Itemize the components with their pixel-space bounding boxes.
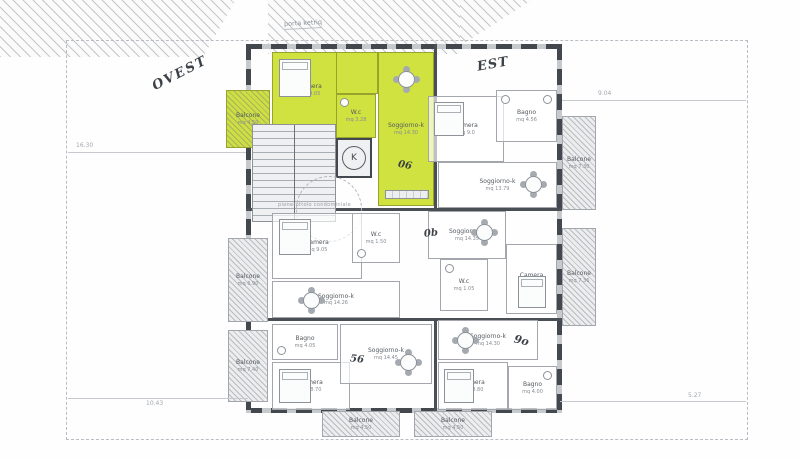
room-midright-soggiorno: Soggiorno-k mq 14.35	[428, 211, 506, 259]
room-midleft-camera: Camera mq 9.05	[272, 213, 362, 279]
corridor-label: pianerottolo condominiale	[278, 202, 351, 208]
table-icon	[398, 71, 415, 88]
room-bottomright-camera: Camera mq 8.80	[438, 362, 508, 410]
room-highlighted-hall	[336, 52, 378, 94]
dim-bottom-right: 5.27	[688, 392, 701, 399]
dim-line-left	[68, 152, 246, 153]
room-bottomleft-balcone-bottom: Balcone mq 4.50	[322, 411, 400, 437]
sink-icon	[543, 95, 552, 104]
room-label: Balcone	[567, 156, 591, 164]
room-label: Balcone	[236, 273, 260, 281]
dim-bottom-left: 10.43	[146, 400, 163, 407]
room-midright-balcone: Balcone mq 7.36	[562, 228, 596, 326]
handwritten-annotation: 56	[349, 353, 364, 365]
room-label: Bagno	[523, 381, 542, 389]
table-icon	[476, 224, 493, 241]
bed-icon	[518, 276, 546, 308]
room-highlighted-wc: W.c mq 3.28	[336, 94, 376, 138]
table-icon	[457, 332, 474, 349]
room-topright-bagno: Bagno mq 4.56	[496, 90, 557, 142]
room-label: Bagno	[295, 335, 314, 343]
bed-icon	[279, 59, 311, 97]
room-area: mq 7.36	[569, 278, 590, 284]
room-midright-camera: Camera mq 9.10	[506, 244, 557, 314]
table-icon	[525, 176, 542, 193]
bed-icon	[279, 219, 311, 255]
room-area: mq 4.56	[516, 117, 537, 123]
room-area: mq 7.40	[238, 367, 259, 373]
elevator-letter: K	[351, 153, 357, 163]
room-area: mq 14.30	[394, 130, 418, 136]
room-area: mq 14.30	[476, 341, 500, 347]
room-label: Balcone	[236, 359, 260, 367]
room-label: Soggiorno-k	[470, 333, 506, 341]
toilet-icon	[445, 264, 454, 273]
room-area: mq 13.79	[486, 186, 510, 192]
handwritten-annotation: 06	[397, 159, 413, 172]
room-label: Balcone	[349, 417, 373, 425]
room-highlighted-soggiorno: Soggiorno-k mq 14.30	[378, 52, 434, 206]
room-label: Bagno	[517, 109, 536, 117]
room-area: mq 14.26	[324, 300, 348, 306]
room-label: Soggiorno-k	[388, 122, 424, 130]
site-note-label: porta ketriq	[284, 18, 323, 30]
toilet-icon	[543, 371, 552, 380]
toilet-icon	[277, 346, 286, 355]
dim-top-right: 9.04	[598, 90, 611, 97]
elevator: K	[336, 138, 372, 178]
table-icon	[303, 292, 320, 309]
room-midright-wc: W.c mq 1.05	[440, 259, 488, 311]
room-area: mq 14.45	[374, 355, 398, 361]
room-area: mq 1.05	[454, 286, 475, 292]
table-icon	[400, 354, 417, 371]
handwritten-annotation: 0b	[423, 227, 438, 239]
room-label: Soggiorno-k	[479, 178, 515, 186]
bed-icon	[434, 102, 464, 136]
room-area: mq 4.50	[443, 425, 464, 431]
dim-line-top-right	[562, 100, 746, 101]
room-area: mq 14.35	[455, 236, 479, 242]
building-wall-top	[246, 44, 562, 49]
room-bottomright-balcone-bottom: Balcone mq 4.50	[414, 411, 492, 437]
room-bottomleft-camera: Camera mq 8.70	[272, 362, 350, 410]
kitchen-icon	[385, 190, 429, 199]
room-topright-balcone: Balcone mq 7.30	[562, 116, 596, 210]
dim-left: 16.30	[76, 142, 93, 149]
room-area: mq 1.50	[366, 239, 387, 245]
room-midleft-soggiorno: Soggiorno-k mq 14.26	[272, 281, 400, 318]
bed-icon	[444, 369, 474, 403]
room-topright-camera: Camera mq 9.0	[428, 96, 504, 162]
floor-plan-scan: porta ketriq OVEST EST Balcone mq 4.50 C…	[0, 0, 800, 460]
room-midleft-balcone: Balcone mq 6.90	[228, 238, 268, 322]
room-area: mq 4.05	[295, 343, 316, 349]
room-label: W.c	[371, 231, 381, 239]
room-label: W.c	[459, 278, 469, 286]
room-area: mq 4.00	[522, 389, 543, 395]
room-label: Balcone	[236, 112, 260, 120]
room-topright-soggiorno: Soggiorno-k mq 13.79	[438, 162, 557, 208]
room-area: mq 4.50	[351, 425, 372, 431]
room-bottomleft-bagno: Bagno mq 4.05	[272, 324, 338, 360]
room-midleft-wc: W.c mq 1.50	[352, 213, 400, 263]
room-area: mq 3.28	[346, 117, 367, 123]
room-area: mq 6.90	[238, 281, 259, 287]
dim-line-bottom-left	[68, 398, 248, 399]
room-label: Soggiorno-k	[318, 293, 354, 301]
elevator-icon: K	[342, 146, 366, 170]
toilet-icon	[340, 98, 349, 107]
room-label: W.c	[351, 109, 361, 117]
room-label: Balcone	[567, 270, 591, 278]
room-label: Soggiorno-k	[368, 347, 404, 355]
toilet-icon	[501, 95, 510, 104]
room-area: mq 7.30	[569, 164, 590, 170]
internal-wall-v2	[434, 318, 437, 413]
toilet-icon	[357, 249, 366, 258]
room-bottomright-bagno: Bagno mq 4.00	[508, 366, 557, 410]
room-label: Balcone	[441, 417, 465, 425]
room-bottomleft-balcone-side: Balcone mq 7.40	[228, 330, 268, 402]
dim-line-bottom-right	[560, 401, 746, 402]
bed-icon	[279, 369, 311, 403]
